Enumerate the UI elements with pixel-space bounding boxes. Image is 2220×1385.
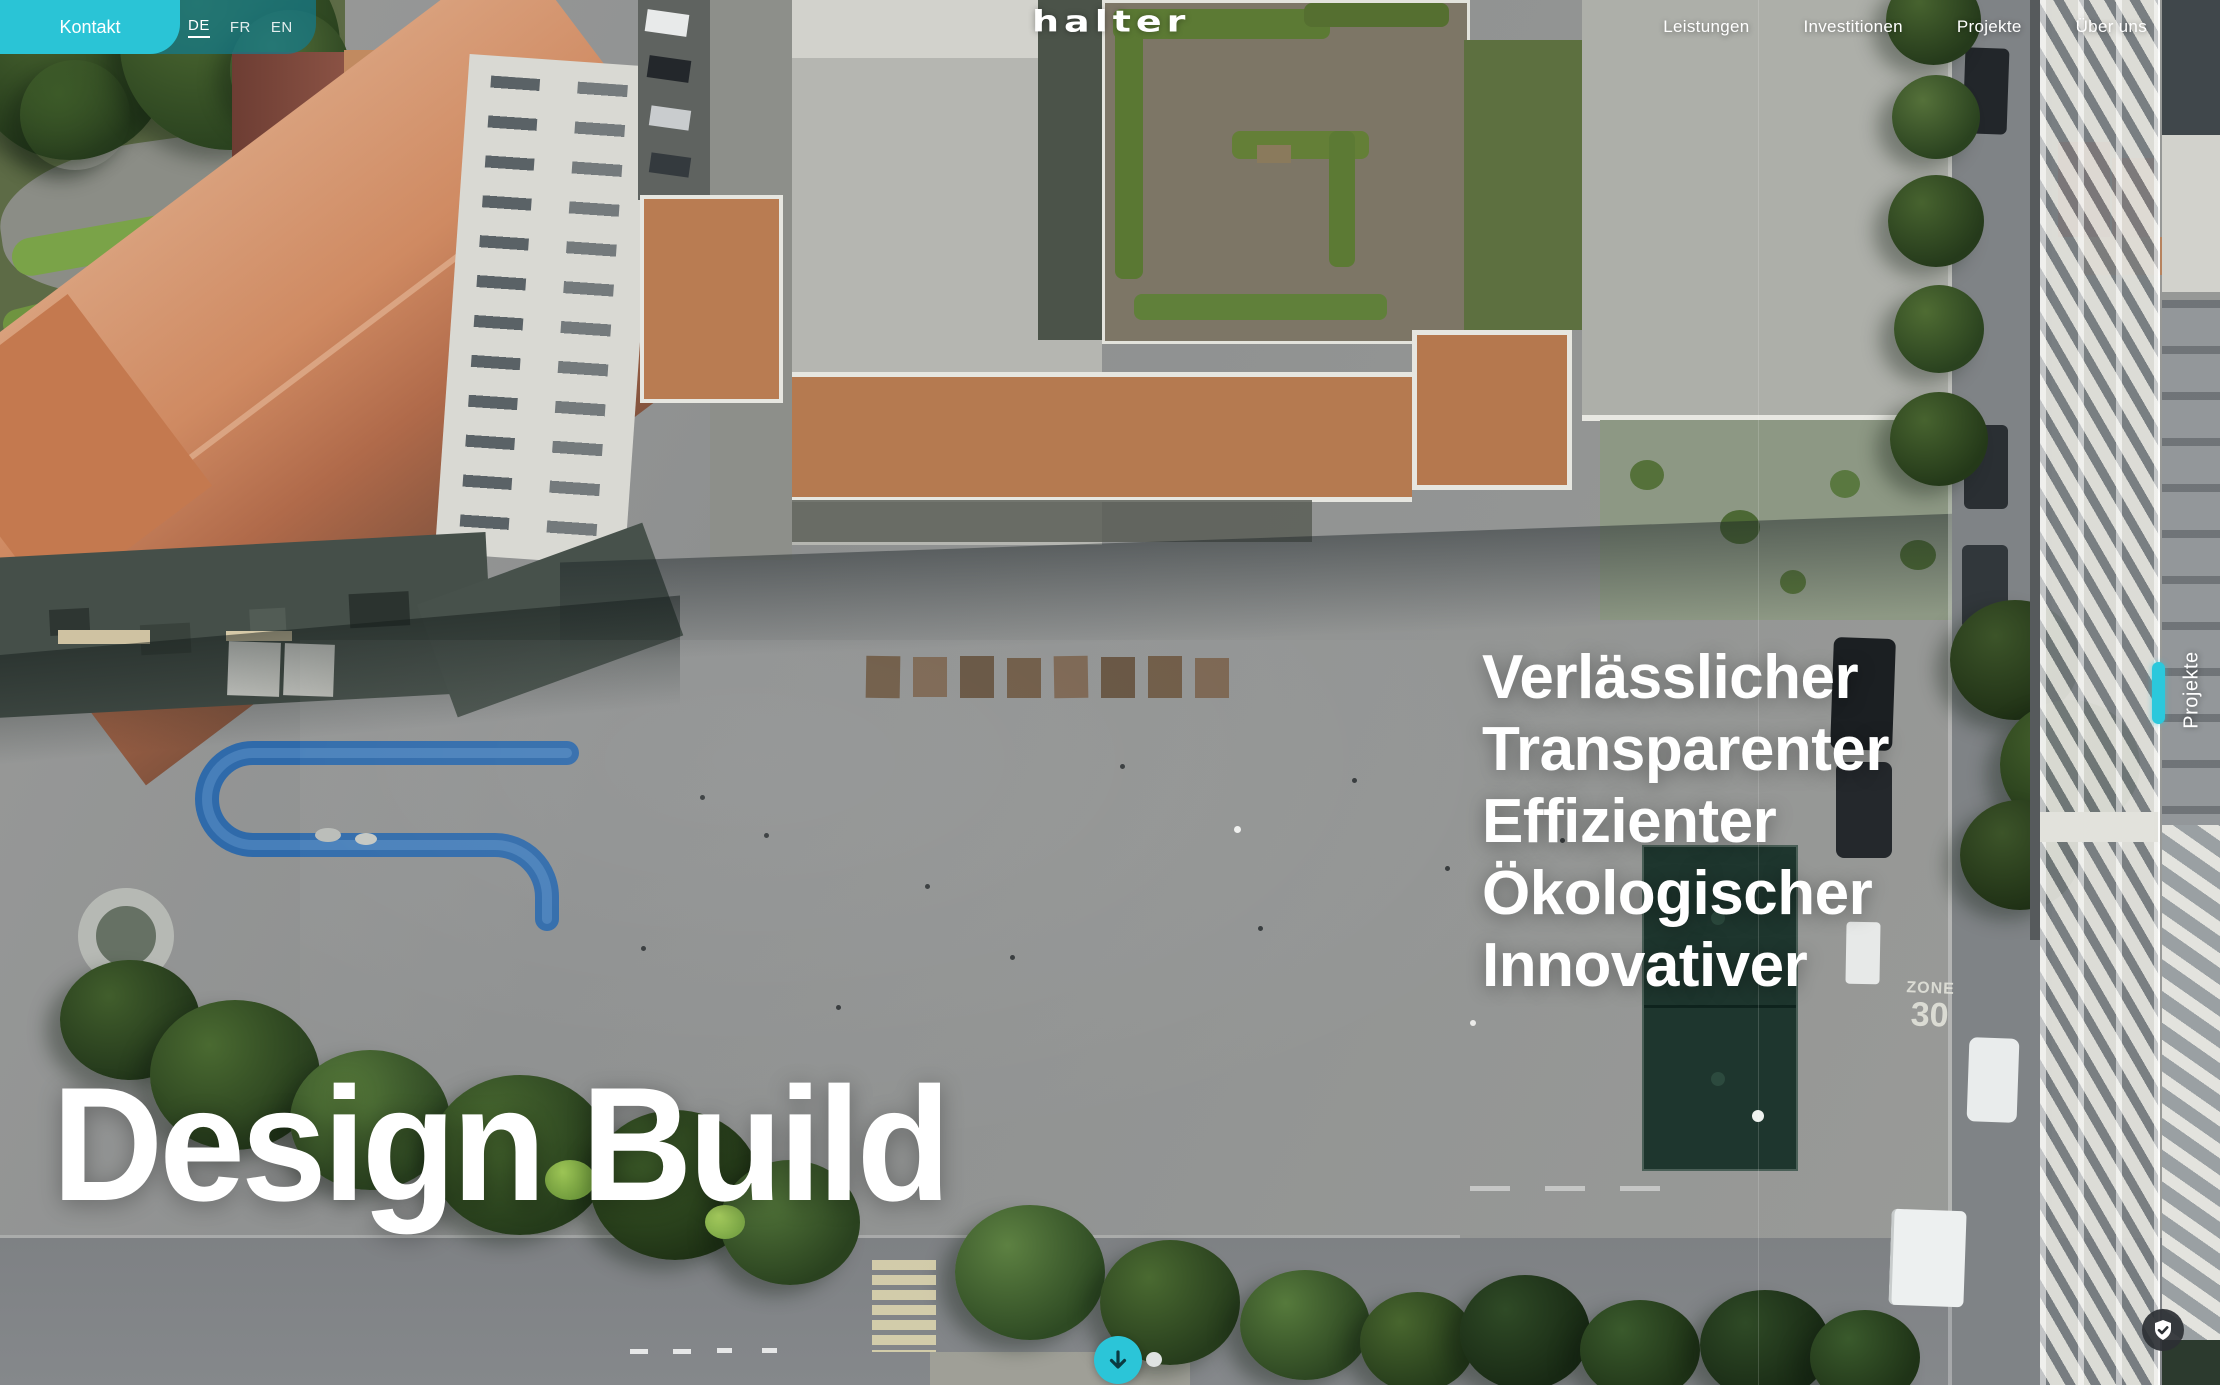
photo-shape: 30 [1899,997,1960,1033]
photo-shape [762,1348,777,1353]
nav-item-leistungen[interactable]: Leistungen [1663,17,1749,37]
photo-shape [2162,135,2220,300]
photo-shape [1894,285,1984,373]
keyword: Innovativer [1482,930,1889,1002]
language-en[interactable]: EN [271,19,293,36]
keyword: Effizienter [1482,786,1889,858]
language-fr[interactable]: FR [230,19,251,36]
main-nav: Leistungen Investitionen Projekte Über u… [1663,17,2147,37]
scroll-down-button[interactable] [1094,1336,1142,1384]
photo-shape [1115,9,1143,279]
photo-shape [1630,460,1664,490]
photo-shape [1304,3,1449,27]
photo-shape [1134,294,1387,320]
photo-shape [673,1349,691,1354]
language-de[interactable]: DE [188,17,210,38]
contact-button[interactable]: Kontakt [0,0,180,54]
privacy-badge-button[interactable] [2142,1309,2184,1351]
zone-30-road-marking: ZONE 30 [1899,979,1961,1033]
photo-shape [2040,812,2160,842]
scroll-rail-indicator[interactable] [2152,662,2165,724]
photo-shape [1890,392,1988,486]
photo-shape [717,1348,732,1353]
arrow-down-icon [1106,1348,1130,1372]
photo-shape [1329,131,1355,266]
photo-shape [1257,145,1291,163]
page-title: Design Build [52,1052,947,1238]
photo-shape [1892,75,1980,159]
photo-shape [1830,470,1860,498]
hero-keywords: Verlässlicher Transparenter Effizienter … [1482,642,1889,1002]
photo-shape [2162,300,2220,825]
photo-shape [1360,1292,1475,1385]
photo-shape [20,60,130,170]
white-van [1888,1209,1966,1308]
nav-item-investitionen[interactable]: Investitionen [1803,17,1902,37]
nav-item-ueber-uns[interactable]: Über uns [2076,17,2147,37]
photo-shape [1967,1037,2020,1123]
logo[interactable]: halter [1032,4,1190,38]
photo-shape [1464,40,1582,330]
photo-shape [2040,0,2160,1385]
keyword: Transparenter [1482,714,1889,786]
scroll-rail-label[interactable]: Projekte [2181,651,2204,728]
photo-shape [2162,0,2220,135]
photo-shape [1240,1270,1370,1380]
photo-shape [2162,825,2220,1340]
hero-section: ZONE 30 Projekte DE FR EN Kontakt halter [0,0,2220,1385]
shield-check-icon [2151,1318,2175,1342]
photo-shape [630,1349,648,1354]
photo-shape [792,372,1412,502]
photo-shape [546,82,627,544]
photo-shape [1102,0,1470,344]
photo-shape [435,54,659,566]
photo-shape [1038,0,1102,340]
photo-shape [459,76,540,538]
photo-shape [249,608,286,632]
photo-shape [1146,1352,1162,1367]
photo-shape [792,500,1312,542]
keyword: Ökologischer [1482,858,1889,930]
keyword: Verlässlicher [1482,642,1889,714]
photo-shape [58,630,150,644]
photo-shape [1412,330,1572,490]
nav-item-projekte[interactable]: Projekte [1957,17,2022,37]
crosswalk [872,1260,936,1352]
photo-shape [640,195,783,403]
photo-shape [1460,1275,1590,1385]
photo-shape [1888,175,1984,267]
